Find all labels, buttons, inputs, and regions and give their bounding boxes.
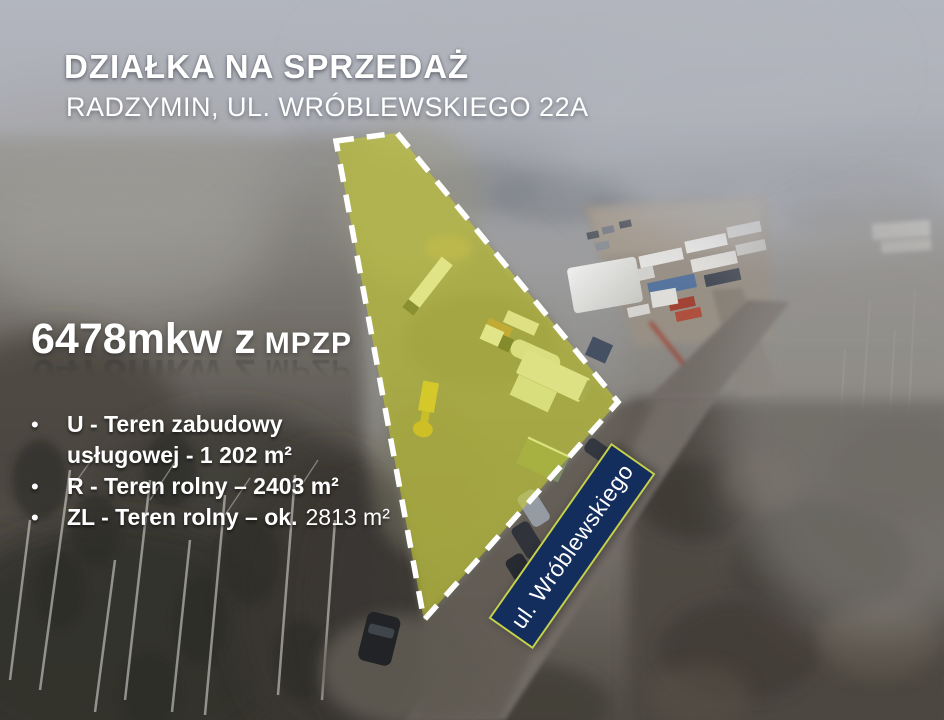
zoning-item-u: • U - Teren zabudowy usługowej - 1 202 m… (31, 409, 390, 471)
zoning-list: • U - Teren zabudowy usługowej - 1 202 m… (31, 409, 390, 533)
bullet-icon: • (31, 409, 53, 440)
zoning-item-u-text: U - Teren zabudowy usługowej - 1 202 m² (67, 409, 292, 471)
area-info: 6478mkw zMPZP 6478mkw zMPZP • U - Teren … (31, 318, 390, 533)
page-subtitle: RADZYMIN, UL. WRÓBLEWSKIEGO 22A (66, 93, 589, 121)
zoning-item-zl-text: ZL - Teren rolny – ok.2813 m² (67, 502, 390, 533)
area-size-text: 6478mkw z (31, 315, 256, 363)
bullet-icon: • (31, 471, 53, 502)
mpzp-label: MPZP (265, 327, 352, 360)
header: DZIAŁKA NA SPRZEDAŻ RADZYMIN, UL. WRÓBLE… (64, 50, 589, 121)
zoning-item-r: • R - Teren rolny – 2403 m² (31, 471, 390, 502)
zoning-item-zl: • ZL - Teren rolny – ok.2813 m² (31, 502, 390, 533)
bullet-icon: • (31, 502, 53, 533)
zoning-item-r-text: R - Teren rolny – 2403 m² (67, 471, 339, 502)
area-headline: 6478mkw zMPZP (31, 318, 390, 361)
page-title: DZIAŁKA NA SPRZEDAŻ (64, 50, 589, 85)
listing-slide: DZIAŁKA NA SPRZEDAŻ RADZYMIN, UL. WRÓBLE… (0, 0, 944, 720)
